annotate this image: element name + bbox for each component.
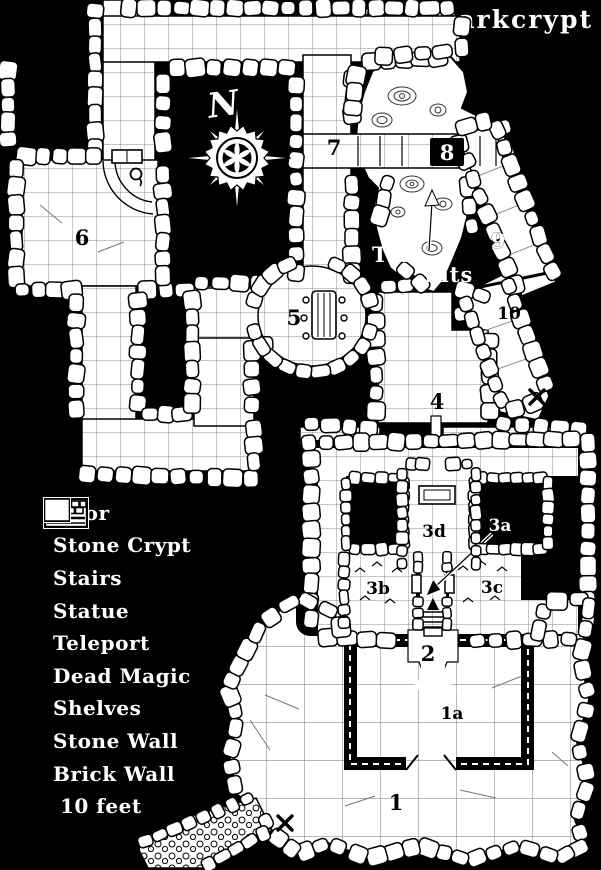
legend-label: Shelves [53, 696, 141, 720]
room-2-funnel [421, 664, 445, 690]
legend-item-dead-magic: Dead Magic [44, 661, 191, 691]
legend-label: Statue [53, 599, 129, 623]
legend-label: Teleport [53, 631, 150, 655]
legend-item-brick-wall: Brick Wall [44, 759, 191, 789]
legend-label: Stairs [53, 566, 122, 590]
room-label-9: 9 [491, 228, 506, 253]
door-room2 [424, 628, 442, 636]
legend-item-statue: Statue [44, 596, 191, 626]
legend: DoorStone CryptStairsStatueTeleportDead … [44, 498, 191, 821]
corridor-south-west [82, 419, 255, 471]
darkcrypt-map-page: The Darkcrypt [0, 0, 601, 870]
room-label-7: 7 [327, 135, 342, 160]
legend-item-stone-crypt: Stone Crypt [44, 531, 191, 561]
legend-item-10-feet: 10 feet [44, 791, 191, 821]
legend-label: Dead Magic [53, 664, 191, 688]
legend-item-stairs: Stairs [44, 563, 191, 593]
room-label-6: 6 [75, 225, 90, 250]
legend-label: 10 feet [60, 794, 142, 818]
room-label-3a: 3a [489, 516, 512, 536]
legend-label: Stone Wall [53, 729, 178, 753]
legend-item-shelves: Shelves [44, 694, 191, 724]
door-3a-west [412, 575, 421, 593]
room-label-10: 10 [497, 304, 521, 324]
room-label-5: 5 [287, 305, 302, 330]
shelves-icon [419, 486, 455, 504]
legend-label: Brick Wall [53, 762, 175, 786]
room-label-8: 8 [440, 140, 455, 165]
tar-pits-label-2: Pits [424, 262, 473, 287]
compass-north-label: N [204, 83, 243, 127]
room-label-1a: 1a [441, 704, 464, 724]
legend-item-stone-wall: Stone Wall [44, 726, 191, 756]
tar-pits-label-1: Tar [372, 242, 413, 267]
legend-label: Stone Crypt [53, 533, 191, 557]
room-label-1: 1 [389, 790, 404, 815]
room-label-3c: 3c [481, 578, 503, 598]
room-label-3d: 3d [422, 522, 446, 542]
room-label-2: 2 [421, 641, 436, 666]
legend-item-teleport: Teleport [44, 628, 191, 658]
room-label-3b: 3b [366, 579, 390, 599]
room-label-4: 4 [430, 389, 445, 414]
